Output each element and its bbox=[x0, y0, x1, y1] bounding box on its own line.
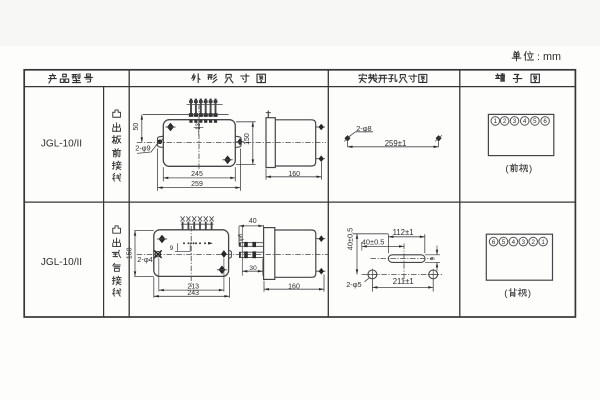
svg-text:160: 160 bbox=[288, 171, 300, 178]
svg-text:9: 9 bbox=[430, 256, 437, 260]
svg-text:1: 1 bbox=[541, 239, 545, 246]
svg-text:259: 259 bbox=[191, 181, 203, 188]
svg-text:13: 13 bbox=[196, 123, 202, 130]
svg-text:4: 4 bbox=[512, 239, 516, 246]
svg-text:150: 150 bbox=[244, 133, 251, 145]
svg-text:3: 3 bbox=[522, 239, 526, 246]
svg-text:259±1: 259±1 bbox=[385, 139, 407, 148]
svg-text:40: 40 bbox=[249, 218, 257, 225]
svg-text:5: 5 bbox=[502, 239, 506, 246]
svg-text:150: 150 bbox=[127, 247, 134, 259]
svg-text:4: 4 bbox=[523, 118, 527, 125]
svg-text:2: 2 bbox=[503, 118, 507, 125]
svg-text:40±0.5: 40±0.5 bbox=[345, 228, 354, 251]
svg-text:5: 5 bbox=[533, 118, 537, 125]
svg-text:211±1: 211±1 bbox=[393, 277, 414, 286]
svg-text:mm: mm bbox=[543, 51, 561, 63]
svg-text:2-φ4: 2-φ4 bbox=[137, 255, 152, 264]
svg-text:245: 245 bbox=[191, 171, 203, 178]
svg-text:6: 6 bbox=[492, 239, 496, 246]
svg-text:243: 243 bbox=[187, 290, 199, 297]
svg-text:JGL-10/II: JGL-10/II bbox=[41, 257, 82, 268]
svg-text:160: 160 bbox=[288, 284, 300, 291]
svg-text:JGL-10/II: JGL-10/II bbox=[41, 139, 82, 150]
svg-text:1: 1 bbox=[494, 118, 498, 125]
svg-text:2-φ9: 2-φ9 bbox=[135, 143, 150, 152]
svg-text:112±1: 112±1 bbox=[393, 228, 414, 237]
svg-text:9: 9 bbox=[170, 245, 174, 252]
svg-text:2-φ5: 2-φ5 bbox=[346, 280, 361, 289]
svg-text:40±0.5: 40±0.5 bbox=[362, 237, 385, 246]
svg-text:50: 50 bbox=[133, 123, 140, 131]
svg-text::: : bbox=[537, 51, 540, 63]
svg-text:): ) bbox=[529, 163, 532, 174]
svg-text:): ) bbox=[528, 288, 531, 299]
svg-text:6: 6 bbox=[543, 118, 547, 125]
svg-text:3: 3 bbox=[513, 118, 517, 125]
svg-text:2: 2 bbox=[531, 239, 535, 246]
svg-text:30: 30 bbox=[249, 265, 257, 272]
svg-text:φ6: φ6 bbox=[237, 233, 244, 241]
